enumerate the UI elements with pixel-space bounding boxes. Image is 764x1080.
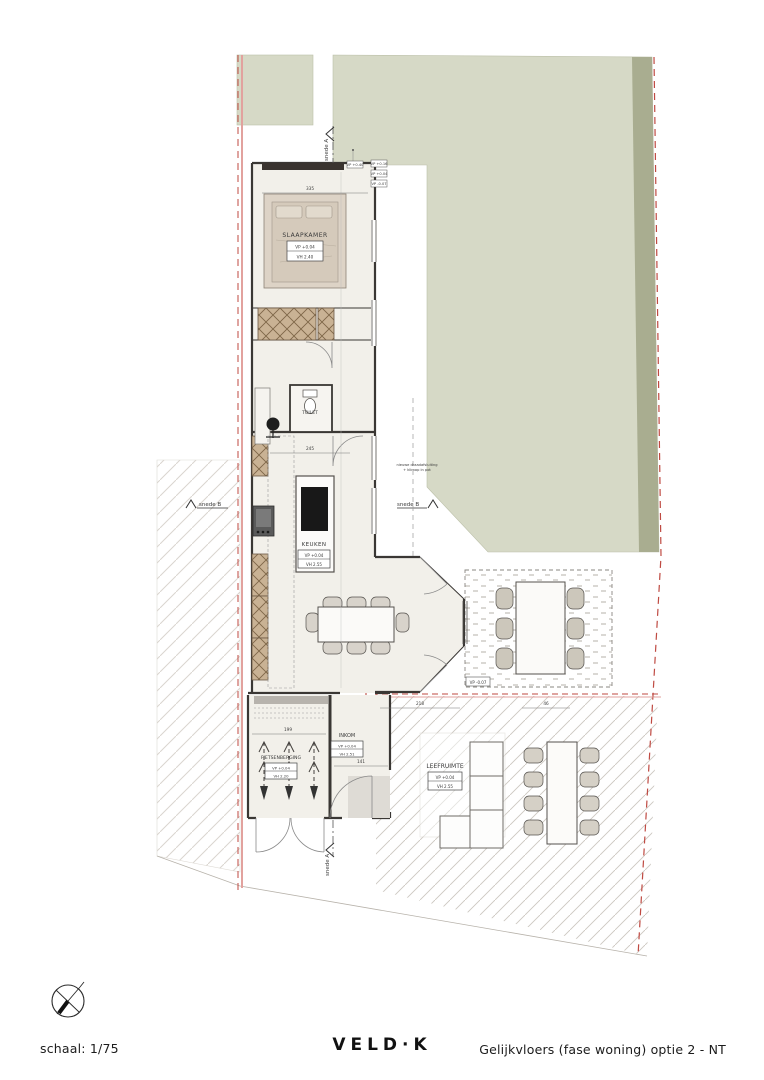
dimension-label: 199 <box>284 727 292 732</box>
cooktop <box>301 487 328 531</box>
slaapkamer-vh: VH 2.40 <box>297 255 314 260</box>
floorplan-canvas: VP -0.07 <box>0 0 764 1080</box>
room-label-toilet: TOILET <box>301 410 318 416</box>
fietsenberging-vh: VH 2.20 <box>273 774 289 779</box>
fence-annotation-line2: + klimop in pot <box>403 468 431 472</box>
section-marker-snede-a-top: snede A <box>324 139 330 161</box>
section-marker-snede-b-right: snede B <box>397 502 419 508</box>
living-table <box>547 742 577 844</box>
fence-annotation-line1: nieuwe draadafsluiting <box>396 463 437 467</box>
terrace: VP -0.07 <box>465 570 612 687</box>
section-marker-snede-b-left: snede B <box>199 502 221 508</box>
toilet-room <box>290 385 332 432</box>
inkom-vp: VP +0.04 <box>338 744 356 749</box>
terrace-table <box>516 582 565 674</box>
room-label-slaapkamer: SLAAPKAMER <box>282 232 327 239</box>
level-tag-1: VP +0.40 <box>347 163 364 167</box>
canopy-band <box>254 696 328 704</box>
drawing-title: Gelijkvloers (fase woning) optie 2 - NT <box>479 1042 726 1057</box>
room-label-keuken: KEUKEN <box>302 542 327 548</box>
dimension-label: 245 <box>306 446 314 451</box>
dining-table <box>318 607 394 642</box>
level-tag-2: VP +0.16 <box>371 162 388 166</box>
entrance-mat <box>348 776 390 818</box>
garden-patch-left <box>237 55 313 125</box>
compass-icon <box>52 982 84 1017</box>
keuken-vp: VP +0.04 <box>305 553 324 558</box>
room-label-leefruimte: LEEFRUIMTE <box>426 763 464 770</box>
top-wall-band <box>262 163 344 170</box>
wardrobe <box>258 308 316 340</box>
slaapkamer-vp: VP +0.04 <box>295 245 315 250</box>
leefruimte-vp: VP +0.04 <box>436 775 455 780</box>
wc-tank <box>303 390 317 397</box>
level-tag-3: VP +0.04 <box>371 172 388 176</box>
dimension-label: 335 <box>306 186 314 191</box>
garden-main <box>333 55 659 552</box>
inkom-vh: VH 2.51 <box>339 752 355 757</box>
drawing-sheet: VP -0.07 <box>0 0 764 1080</box>
dimension-label: 218 <box>416 701 424 706</box>
neighbour-hatch-left <box>157 460 240 872</box>
level-tag-4: VP -0.07 <box>371 182 386 186</box>
room-label-inkom: INKOM <box>339 733 355 739</box>
section-marker-snede-a-bottom: snede A <box>325 854 331 876</box>
desk-chair <box>267 418 280 431</box>
dimension-label: 46 <box>543 701 549 706</box>
room-label-fietsenberging: FIETSENBERGING <box>261 755 302 761</box>
keuken-vh: VH 2.55 <box>306 562 322 567</box>
dimension-label: 141 <box>357 759 365 764</box>
leefruimte-vh: VH 2.55 <box>437 784 453 789</box>
fietsenberging-vp: VP +0.04 <box>272 766 290 771</box>
terrace-level-label: VP -0.07 <box>470 680 487 685</box>
desk <box>255 388 270 444</box>
